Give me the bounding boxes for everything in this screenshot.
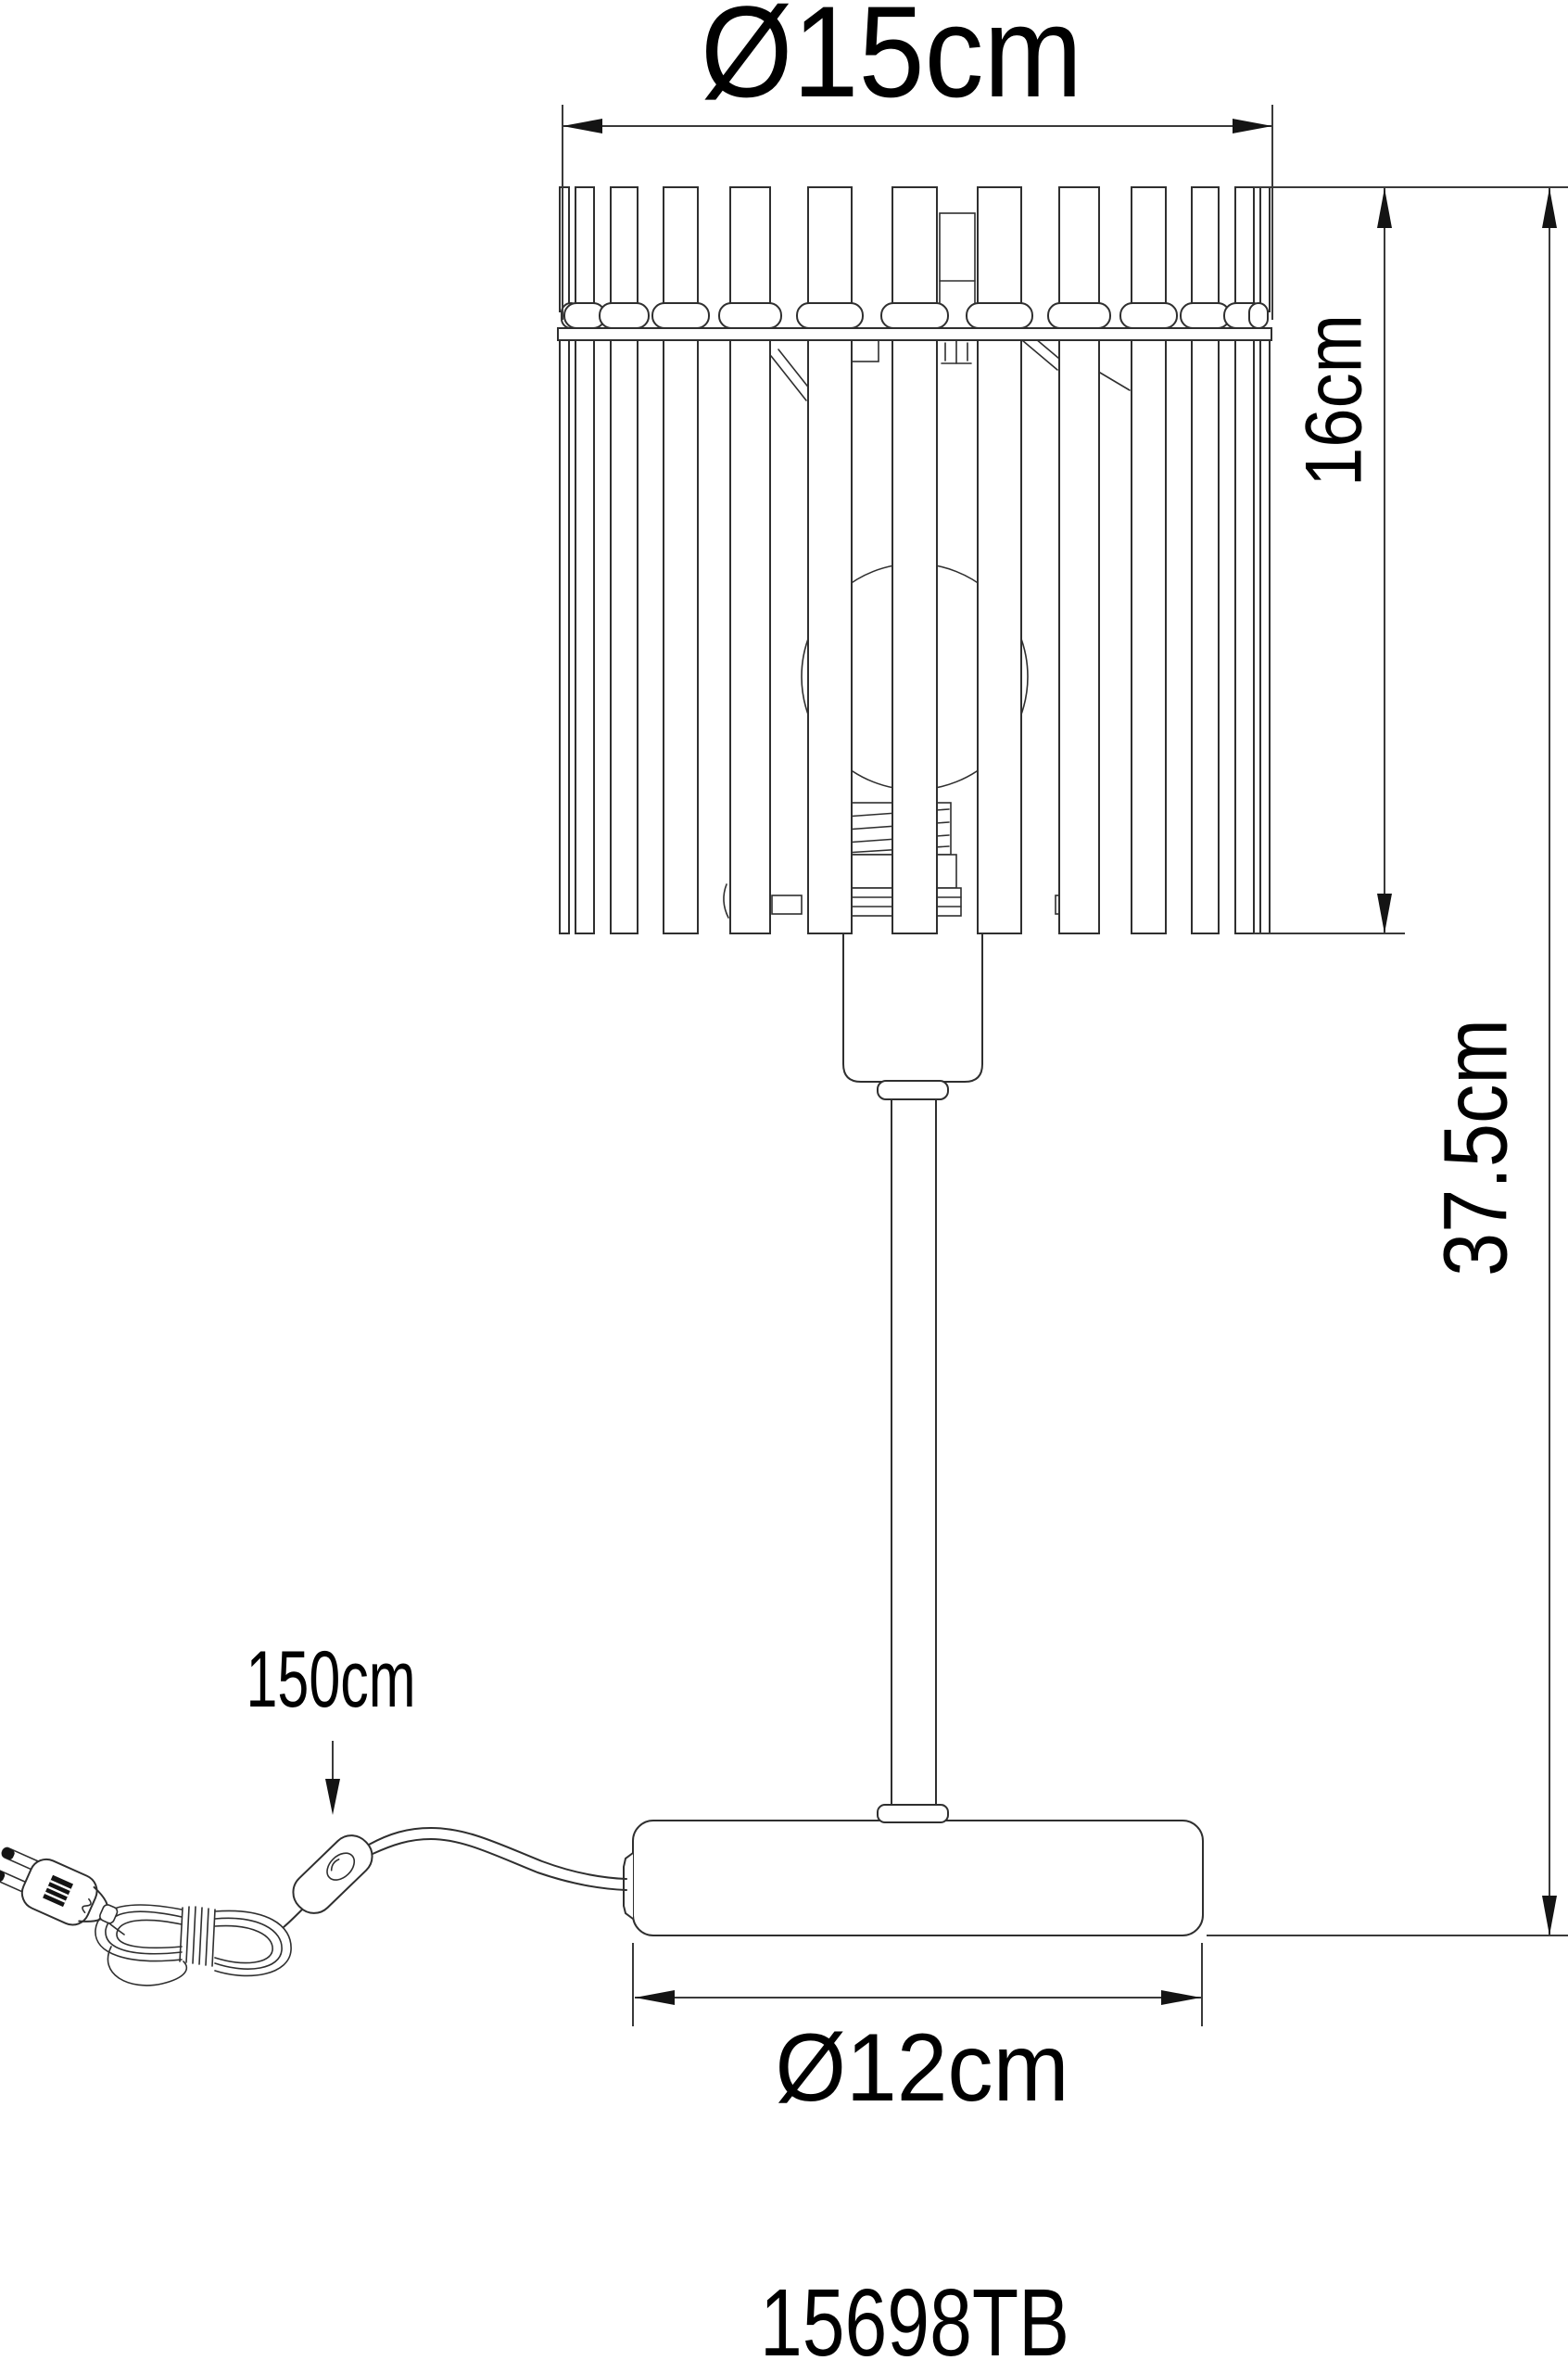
product-code: 15698TB [760, 2269, 1069, 2373]
arrowhead-down [1542, 1896, 1557, 1935]
cord-exit-notch [624, 1853, 633, 1919]
label-shade-diameter: Ø15cm [701, 0, 1082, 124]
arrowhead-right [1161, 1990, 1201, 2005]
shade-support-band [558, 328, 1271, 340]
power-cord [0, 1827, 626, 1985]
socket-screw-detail [942, 340, 971, 363]
cord-coil [95, 1905, 291, 1986]
label-shade-height: 16cm [1290, 314, 1379, 487]
inline-switch [285, 1827, 380, 1921]
lamp-stem [891, 1098, 936, 1826]
shade-slats-upper [560, 187, 1270, 311]
diagram-page: Ø15cm 16cm 37.5cm 150cm Ø12cm 15698TB [0, 0, 1568, 2373]
stem-base-collar [878, 1805, 948, 1822]
label-cable-length: 150cm [247, 1635, 416, 1724]
label-total-height: 37.5cm [1425, 1019, 1526, 1276]
cord-base-to-switch-top [369, 1828, 626, 1879]
arrowhead-down [325, 1779, 340, 1815]
arrowhead-left [635, 1990, 675, 2005]
dimension-shade-height [1254, 187, 1568, 933]
arrowhead-down [1377, 894, 1392, 933]
arrowhead-left [563, 119, 602, 133]
cord-switch-to-coil [284, 1910, 302, 1927]
lamp-dimension-drawing: Ø15cm 16cm 37.5cm 150cm Ø12cm 15698TB [0, 0, 1568, 2373]
dimension-cable-length-pointer [325, 1741, 340, 1815]
cord-base-to-switch-bottom [373, 1839, 626, 1890]
stem-top-collar [878, 1081, 948, 1099]
arrowhead-up [1542, 188, 1557, 228]
shade-slats-lower [560, 334, 1270, 933]
socket-housing [843, 918, 982, 1082]
lamp-base [633, 1821, 1203, 1935]
arrowhead-up [1377, 188, 1392, 228]
arrowhead-right [1233, 119, 1272, 133]
shade-bead-ring [562, 303, 1268, 328]
label-base-diameter: Ø12cm [776, 2014, 1069, 2122]
